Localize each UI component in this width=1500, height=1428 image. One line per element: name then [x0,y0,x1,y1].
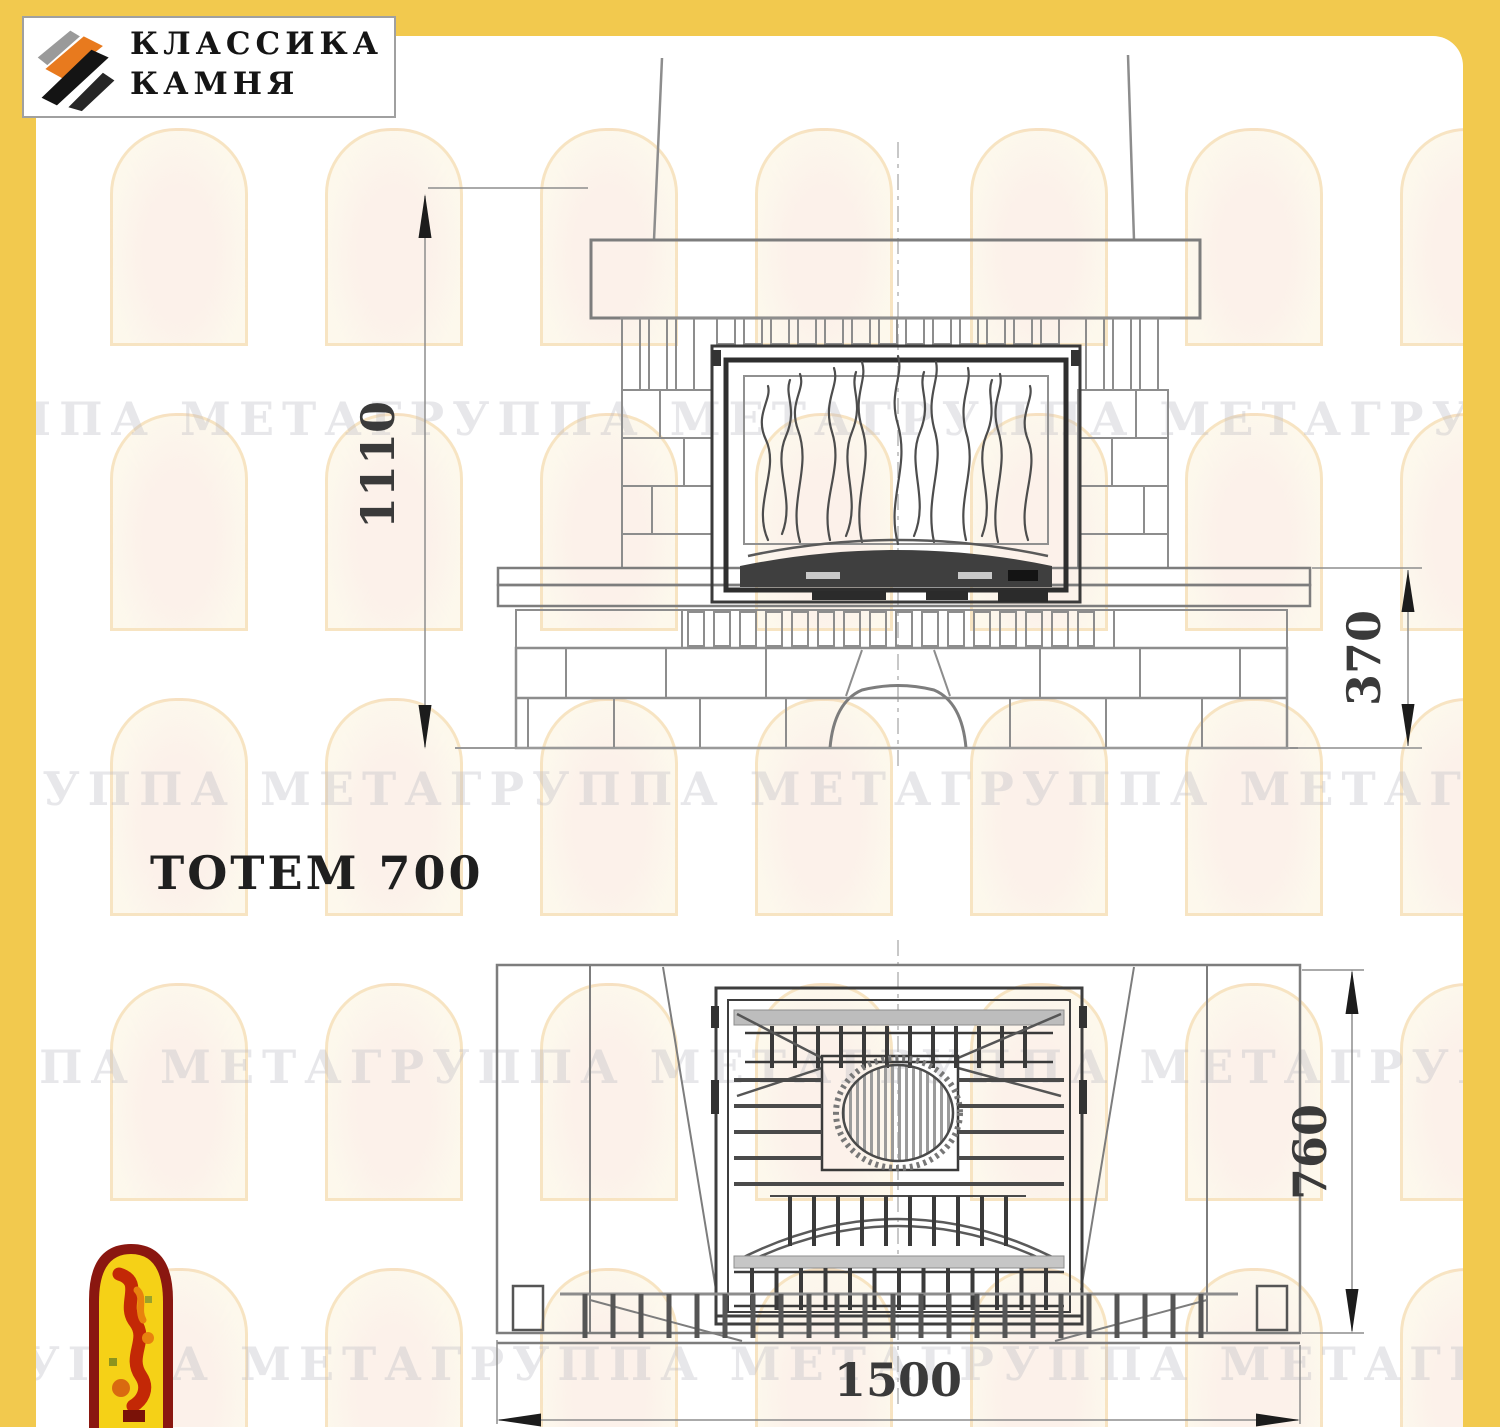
dentil-brick [798,318,816,344]
band-latch [1008,570,1038,581]
dentil-brick [987,318,1005,344]
arrow-down-icon [1346,1289,1359,1333]
dentil-brick [852,318,870,344]
arrow-up-icon [419,194,432,238]
band-mark [806,572,840,579]
dentil-brick [744,318,762,344]
dentil-brick [1014,318,1032,344]
vent-slot [998,590,1048,602]
fireplace-top-plan: 760 1500 [497,940,1364,1427]
arrow-right-icon [1256,1414,1300,1427]
insert-corner-tab [1071,350,1080,366]
vent-slot [812,591,886,600]
lower-dentil-course [516,610,1287,648]
front-step-ticks [585,1294,1201,1338]
dentil-row-right [1086,318,1158,390]
dentil-brick [1041,318,1059,344]
grate-ticks-lower [752,1268,1046,1310]
firebox-insert [712,346,1080,602]
dentil-brick [974,612,990,646]
dim-label-1500: 1500 [834,1353,962,1407]
dentil-brick [717,318,735,344]
dentil-brick [1026,612,1042,646]
insert-tab [1079,1006,1087,1028]
plan-firebox-insert [711,988,1087,1324]
vent-slot [926,591,968,600]
brick-column-right [1078,390,1168,568]
dentil-brick [676,318,694,390]
technical-drawing: 1110 370 [0,0,1500,1427]
step-bracket [1257,1286,1287,1330]
diagonal-stone-stripes-icon [32,24,124,112]
dentil-brick [879,318,897,344]
fireplace-front-elevation: 1110 370 [351,55,1422,770]
stone-base [455,648,1298,748]
dentil-brick [825,318,843,344]
flue-opening [843,1065,953,1161]
dimension-height-total: 1110 [351,188,588,749]
dentil-brick [1000,612,1016,646]
dimension-width: 1500 [497,1340,1300,1427]
insert-base-band [740,550,1052,587]
back-edge-band [734,1010,1064,1025]
dentil-brick [1052,612,1068,646]
step-bracket [513,1286,543,1330]
meta-flame-figure-mascot [85,1238,177,1428]
band-mark [958,572,992,579]
dentil-brick [818,612,834,646]
dentil-brick [740,612,756,646]
dim-label-760: 760 [1283,1104,1337,1200]
company-name-line1: КЛАССИКА [130,24,383,64]
insert-tab [1079,1080,1087,1114]
insert-tab [711,1080,719,1114]
flame-grill-pattern [762,356,1032,544]
dentil-row-middle [717,318,1059,344]
dentil-brick [1086,318,1104,390]
dim-label-370: 370 [1337,610,1391,706]
dentil-brick [960,318,978,344]
company-logo: КЛАССИКА КАМНЯ [22,16,396,118]
dentil-brick [948,612,964,646]
dentil-brick [649,318,667,390]
arrow-left-icon [497,1414,541,1427]
dentil-brick [870,612,886,646]
company-name: КЛАССИКА КАМНЯ [130,24,383,104]
insert-tab [711,1006,719,1028]
dentil-brick [906,318,924,344]
dentil-brick [922,612,938,646]
page-frame-left [0,0,36,1427]
arrow-up-icon [1402,570,1415,612]
dentil-brick [1140,318,1158,390]
dentil-brick [688,612,704,646]
insert-corner-tab [712,350,721,366]
dentil-brick [792,612,808,646]
arrow-down-icon [419,705,432,749]
dentil-brick [1113,318,1131,390]
dentil-brick [771,318,789,344]
arrow-down-icon [1402,704,1415,746]
dimension-depth: 760 [1283,970,1364,1333]
model-title: ТОТЕМ 700 [150,846,484,900]
dentil-row-left [622,318,694,390]
dentil-brick [622,318,640,390]
dentil-brick [714,612,730,646]
company-name-line2: КАМНЯ [130,64,383,104]
page: { "logo": { "line1": "КЛАССИКА", "line2"… [0,0,1500,1427]
dentil-brick [1078,612,1094,646]
arrow-up-icon [1346,970,1359,1014]
front-sill-band [734,1256,1064,1268]
dentil-brick [933,318,951,344]
dim-label-1110: 1110 [351,401,405,529]
chimney-lines [654,55,1134,240]
dentil-brick [844,612,860,646]
brick-column-left [622,390,712,568]
dentil-brick [766,612,782,646]
mantel-shelf [591,240,1200,318]
page-frame-right [1463,0,1500,1427]
